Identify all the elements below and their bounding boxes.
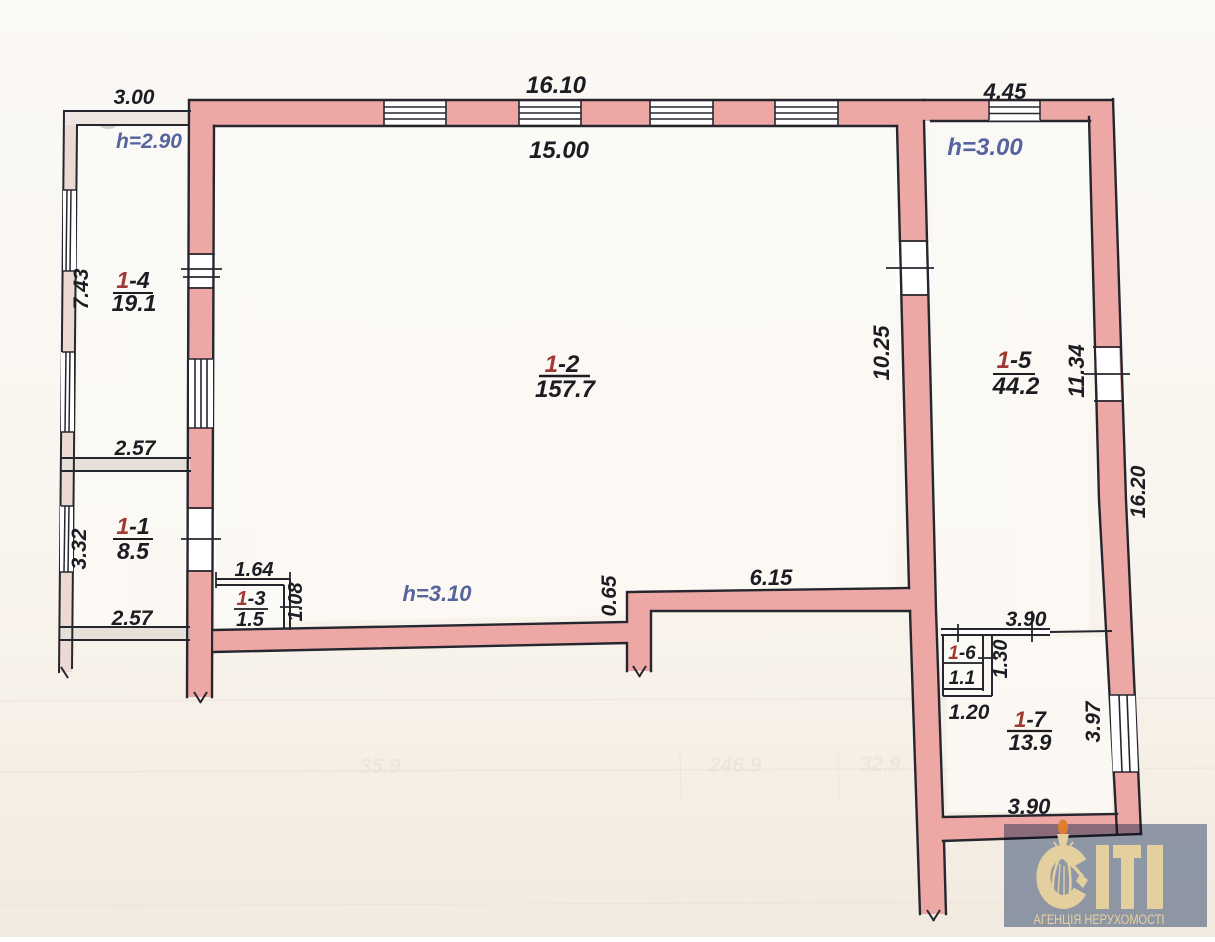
svg-text:15.00: 15.00	[529, 137, 590, 164]
svg-text:44.2: 44.2	[992, 373, 1040, 400]
svg-text:h=3.00: h=3.00	[947, 134, 1023, 161]
svg-text:0.65: 0.65	[598, 575, 621, 616]
svg-text:32.9: 32.9	[860, 753, 901, 776]
svg-text:1.08: 1.08	[285, 582, 307, 622]
svg-text:h=2.90: h=2.90	[116, 130, 182, 153]
svg-text:1.1: 1.1	[949, 668, 975, 689]
svg-text:246.9: 246.9	[708, 754, 762, 777]
svg-text:157.7: 157.7	[535, 376, 597, 403]
svg-text:2.57: 2.57	[114, 437, 157, 460]
svg-text:3.32: 3.32	[68, 528, 91, 569]
svg-text:1.64: 1.64	[235, 559, 274, 581]
svg-text:11.34: 11.34	[1064, 344, 1089, 397]
svg-text:16.10: 16.10	[526, 72, 587, 99]
svg-text:3.97: 3.97	[1082, 700, 1105, 742]
svg-text:h=3.10: h=3.10	[402, 581, 472, 606]
svg-text:2.57: 2.57	[111, 607, 154, 630]
svg-text:1.30: 1.30	[990, 640, 1012, 679]
svg-text:3.00: 3.00	[114, 86, 155, 109]
svg-text:1-5: 1-5	[997, 347, 1032, 374]
svg-text:4.45: 4.45	[983, 79, 1028, 104]
svg-text:1-3: 1-3	[237, 588, 266, 610]
svg-text:1.5: 1.5	[236, 609, 265, 631]
svg-text:1-2: 1-2	[545, 351, 580, 378]
svg-text:13.9: 13.9	[1009, 730, 1053, 755]
svg-text:8.5: 8.5	[117, 538, 150, 564]
svg-text:16.20: 16.20	[1127, 465, 1150, 518]
svg-text:1-6: 1-6	[948, 643, 976, 664]
svg-text:3.90: 3.90	[1008, 794, 1052, 819]
svg-text:6.15: 6.15	[750, 565, 794, 590]
svg-text:3.90: 3.90	[1006, 608, 1047, 631]
svg-text:1-1: 1-1	[116, 513, 149, 539]
svg-text:35.9: 35.9	[360, 755, 401, 778]
svg-text:1-7: 1-7	[1014, 707, 1048, 732]
svg-text:19.1: 19.1	[112, 290, 157, 316]
svg-text:10.25: 10.25	[869, 325, 894, 381]
svg-text:АГЕНЦІЯ НЕРУХОМОСТІ: АГЕНЦІЯ НЕРУХОМОСТІ	[1034, 912, 1165, 927]
svg-text:7.43: 7.43	[70, 268, 93, 309]
svg-text:1.20: 1.20	[949, 701, 990, 724]
